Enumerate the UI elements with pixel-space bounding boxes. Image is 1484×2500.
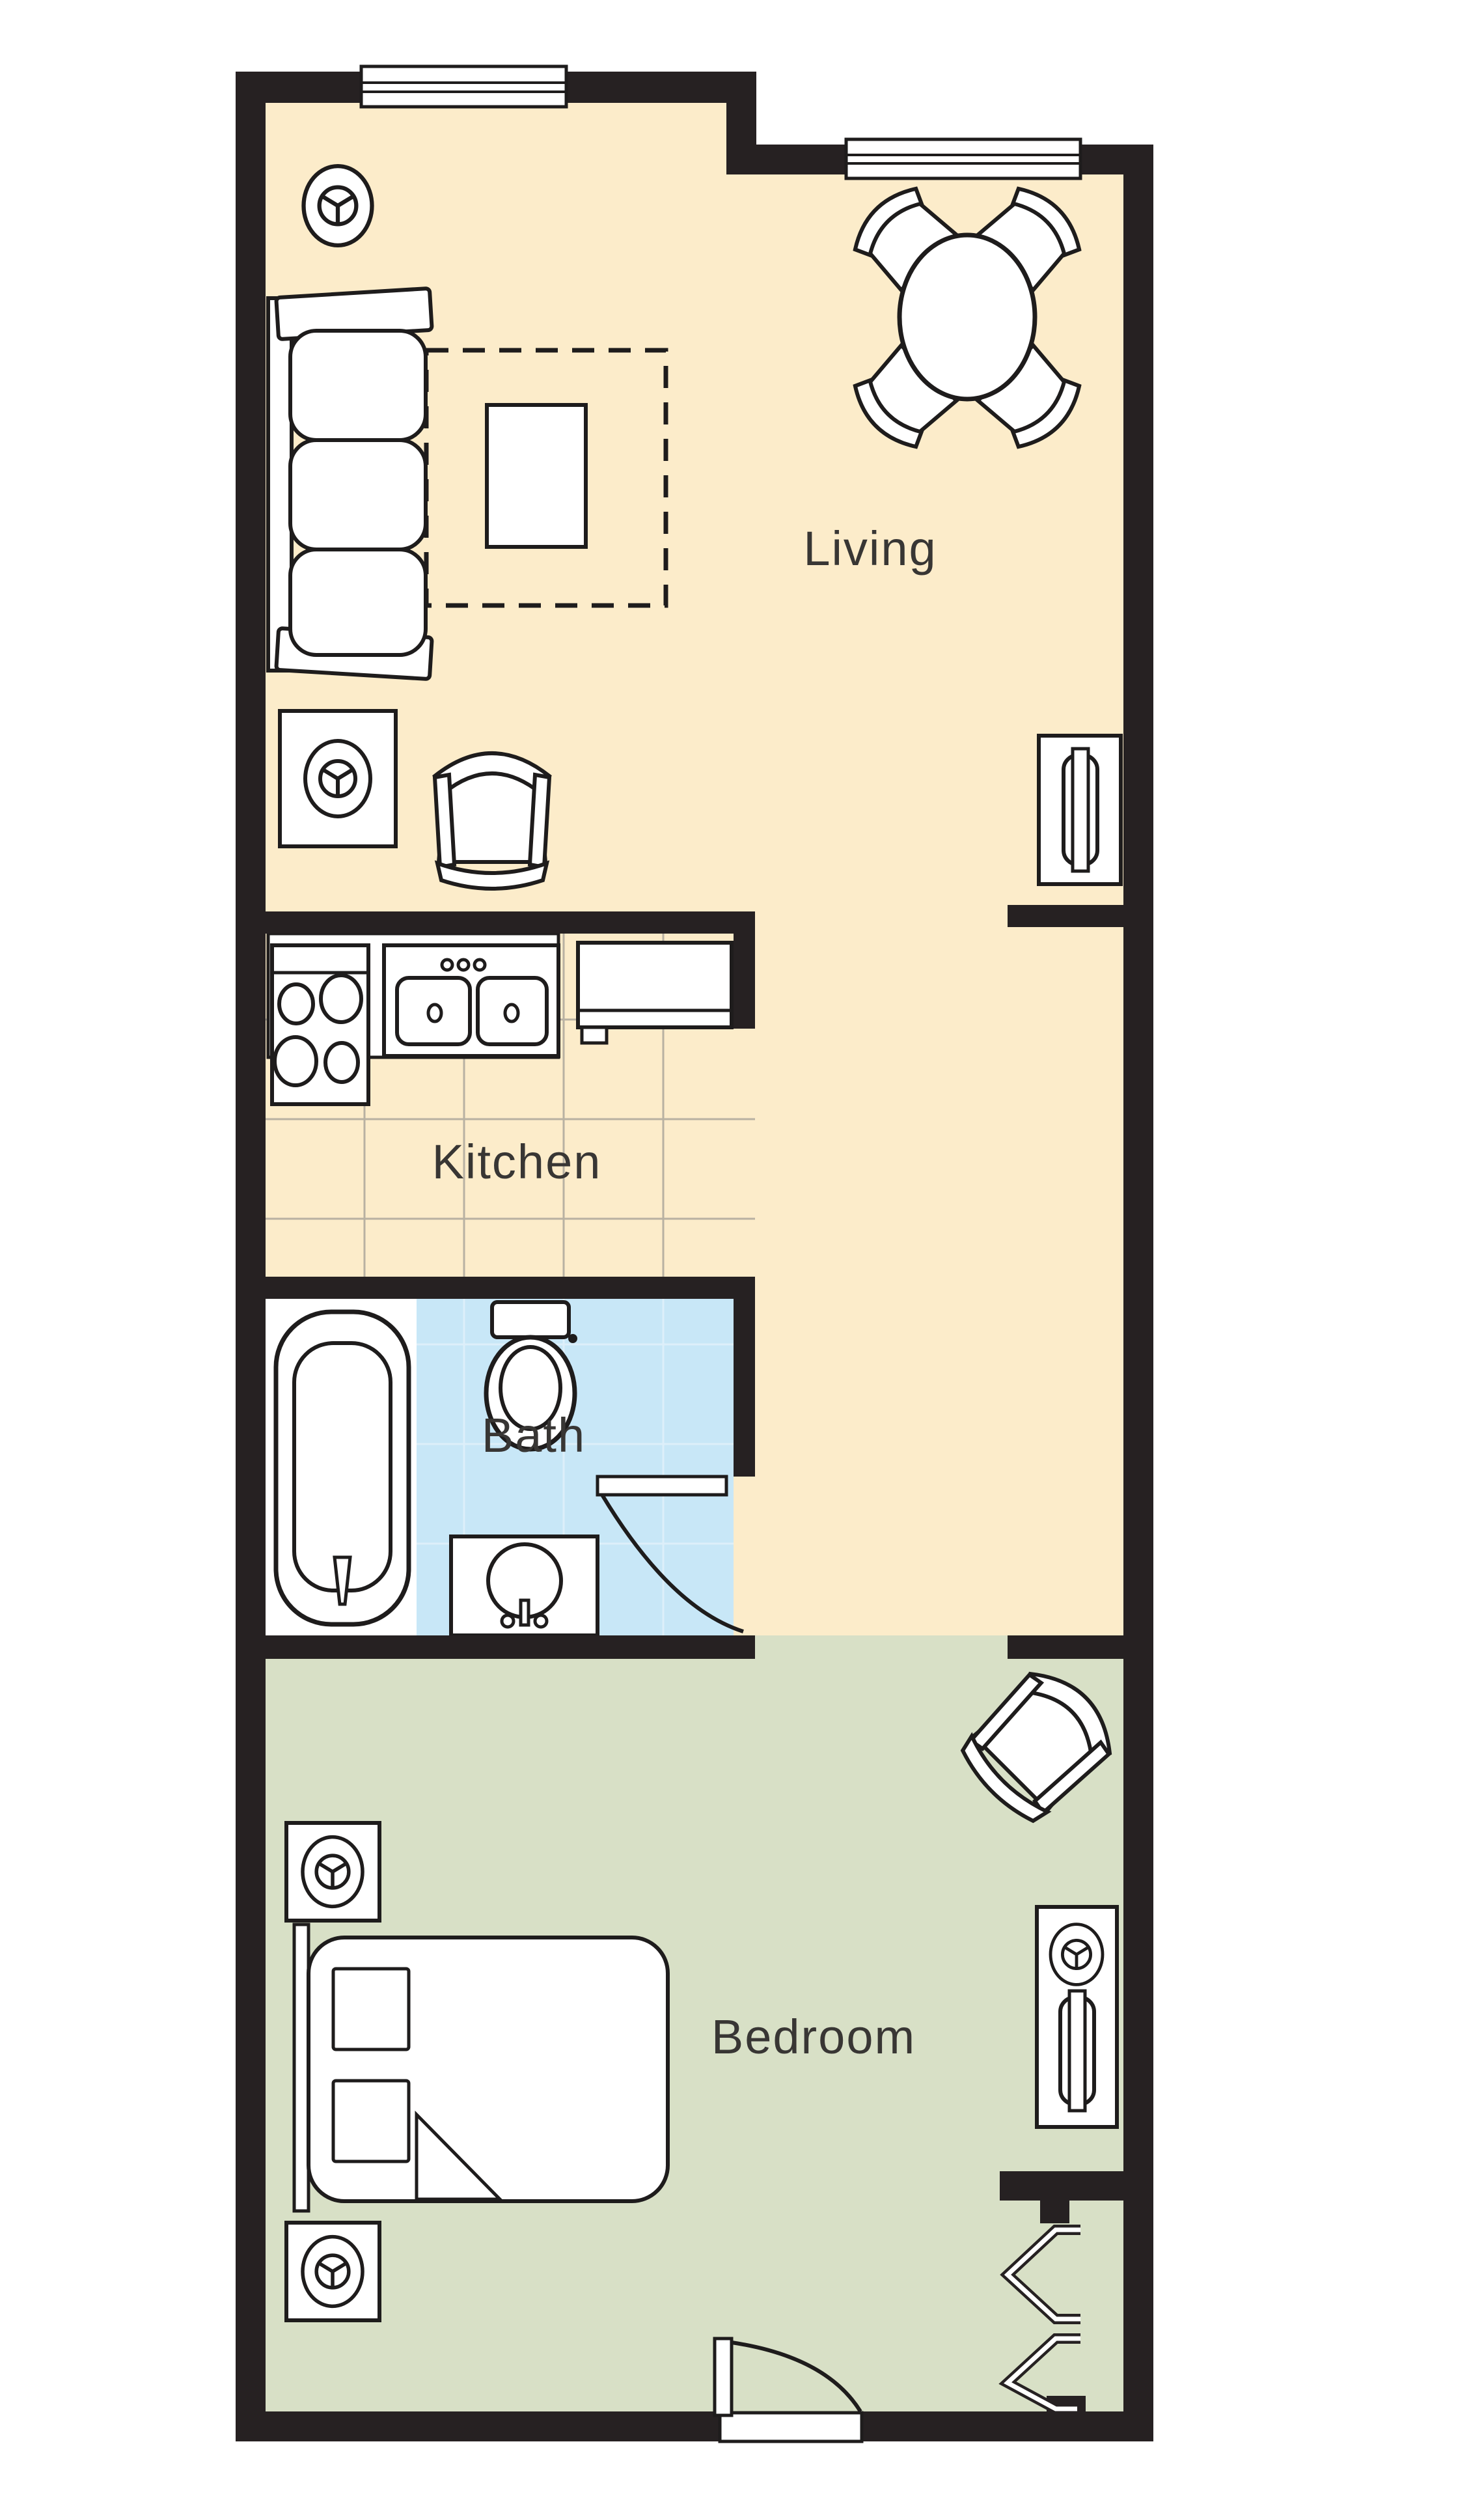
tv-console-living (1039, 736, 1121, 884)
wall-left (236, 72, 266, 2441)
lamp-icon-end-table (305, 741, 370, 816)
dresser-with-tv (1037, 1907, 1117, 2127)
sofa (268, 288, 432, 679)
entry-threshold (720, 2413, 862, 2441)
kitchen-label: Kitchen (432, 1135, 602, 1189)
nightstand-with-lamp-top (286, 1823, 379, 1921)
vanity-sink (451, 1536, 598, 1635)
bath-door-opening (734, 1477, 755, 1635)
coffee-table (487, 405, 586, 547)
wall-bedroom-stub (1008, 1635, 1123, 1659)
bath-door-leaf (598, 1477, 726, 1495)
end-table-with-lamp (280, 711, 396, 846)
window-icon-top-right (846, 139, 1080, 178)
living-label: Living (803, 521, 937, 576)
window-icon-top-left (361, 66, 566, 107)
range-stove (272, 945, 368, 1104)
bathtub (276, 1312, 409, 1624)
bed (294, 1924, 668, 2211)
lamp-icon-dresser (1051, 1924, 1103, 1985)
bath-label: Bath (482, 1408, 586, 1462)
wall-closet-tooth (1040, 2201, 1069, 2223)
tv-icon-bedroom (1069, 1991, 1085, 2111)
floor-plan-page: Living Kitchen Bath Bedroom (0, 0, 1484, 2500)
wall-living-hall-stub (1008, 905, 1123, 927)
floor-plan-canvas: Living Kitchen Bath Bedroom (0, 0, 1484, 2500)
double-sink (384, 945, 558, 1056)
lamp-icon-living (304, 166, 372, 245)
bedroom-label: Bedroom (711, 2010, 916, 2064)
wall-right (1123, 145, 1153, 2441)
wall-bottom (236, 2411, 1153, 2441)
dining-table (900, 235, 1035, 399)
lamp-icon-nightstand-bottom (303, 2237, 363, 2307)
refrigerator (578, 943, 732, 1043)
entry-door-leaf (715, 2339, 732, 2415)
wall-closet-top (1000, 2171, 1123, 2201)
nightstand-with-lamp-bottom (286, 2223, 379, 2320)
tv-icon-living (1073, 749, 1088, 871)
wall-bath-top (266, 1277, 755, 1299)
wall-kitchen-divider (734, 911, 755, 1029)
lamp-icon-nightstand-top (303, 1837, 363, 1907)
wall-kitchen-top (266, 911, 755, 934)
wall-bath-right (734, 1277, 755, 1477)
wall-bath-bottom (236, 1635, 755, 1659)
